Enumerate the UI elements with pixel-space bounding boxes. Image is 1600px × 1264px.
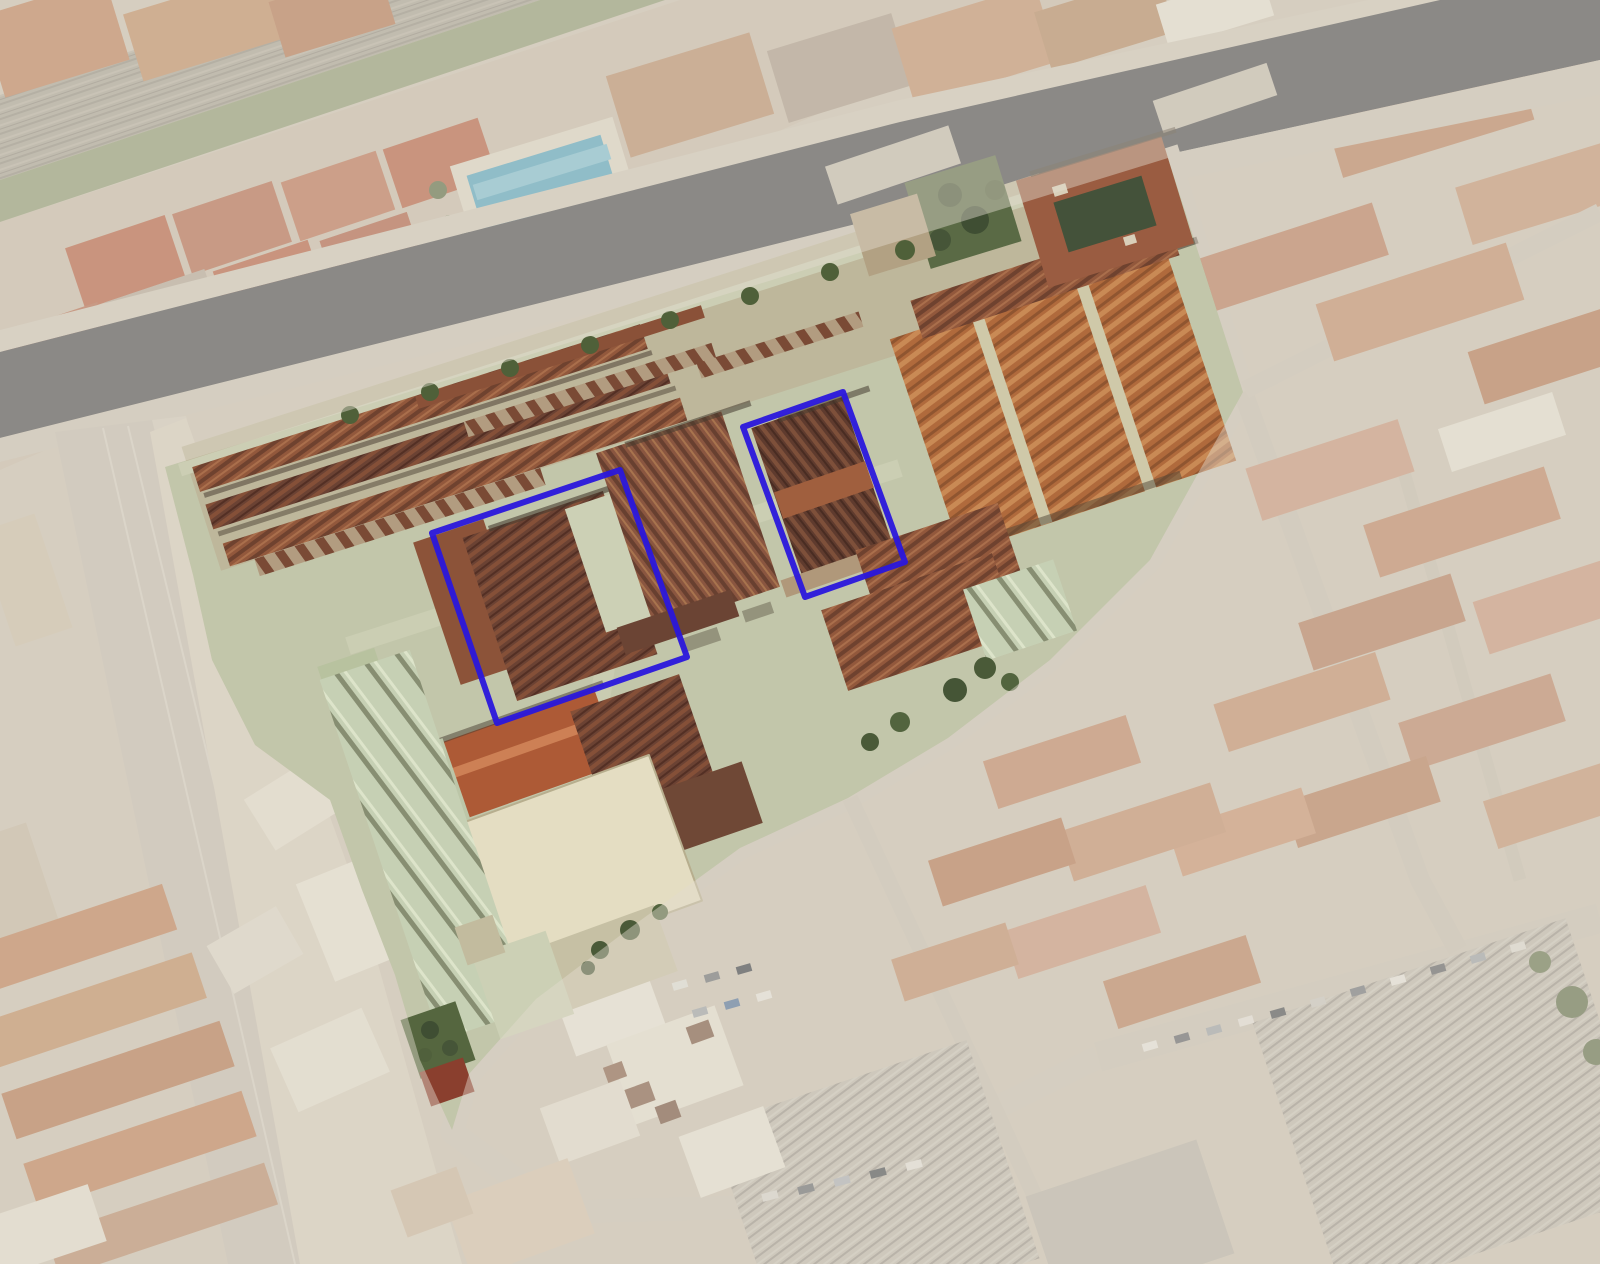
tree: [661, 311, 679, 329]
tree: [421, 1021, 439, 1039]
tree: [418, 1048, 432, 1062]
tree: [442, 1040, 458, 1056]
tree: [890, 712, 910, 732]
aerial-photo-screenshot: [0, 0, 1600, 1264]
tree: [741, 287, 759, 305]
tree: [581, 336, 599, 354]
aerial-imagery-canvas[interactable]: [0, 0, 1600, 1264]
tree: [974, 657, 996, 679]
tree: [861, 733, 879, 751]
tree: [821, 263, 839, 281]
tree: [943, 678, 967, 702]
tree: [895, 240, 915, 260]
